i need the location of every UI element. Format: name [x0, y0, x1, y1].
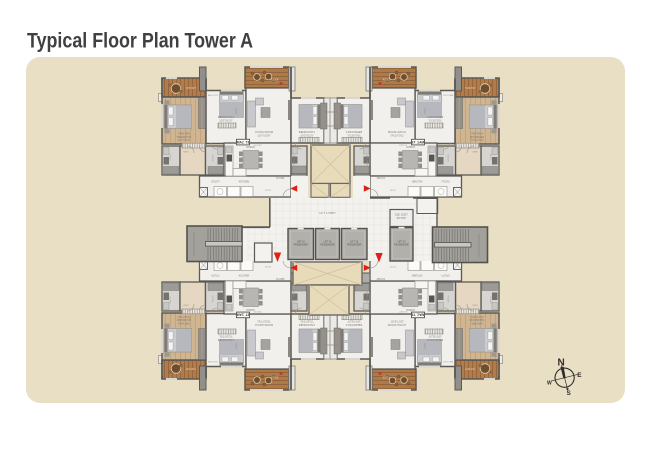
svg-text:LIFT 16: LIFT 16 [350, 242, 359, 244]
svg-text:Typical Floor Plan Tower A: Typical Floor Plan Tower A [27, 29, 253, 53]
svg-text:LIFT 16: LIFT 16 [324, 242, 333, 244]
svg-text:PASSENGER: PASSENGER [320, 244, 334, 247]
svg-text:PASSENGER: PASSENGER [394, 244, 408, 247]
svg-text:6'6"X4'6": 6'6"X4'6" [397, 217, 407, 220]
svg-text:LIFT LOBBY: LIFT LOBBY [319, 211, 336, 215]
svg-text:PASSENGER: PASSENGER [294, 244, 308, 247]
svg-text:E: E [577, 372, 582, 379]
svg-text:W: W [547, 380, 552, 386]
svg-text:LIFT 16: LIFT 16 [297, 242, 306, 244]
svg-text:S: S [567, 390, 571, 397]
svg-text:LIFT 13: LIFT 13 [398, 242, 407, 244]
svg-text:N: N [558, 358, 565, 369]
svg-text:PASSENGER: PASSENGER [347, 244, 361, 247]
